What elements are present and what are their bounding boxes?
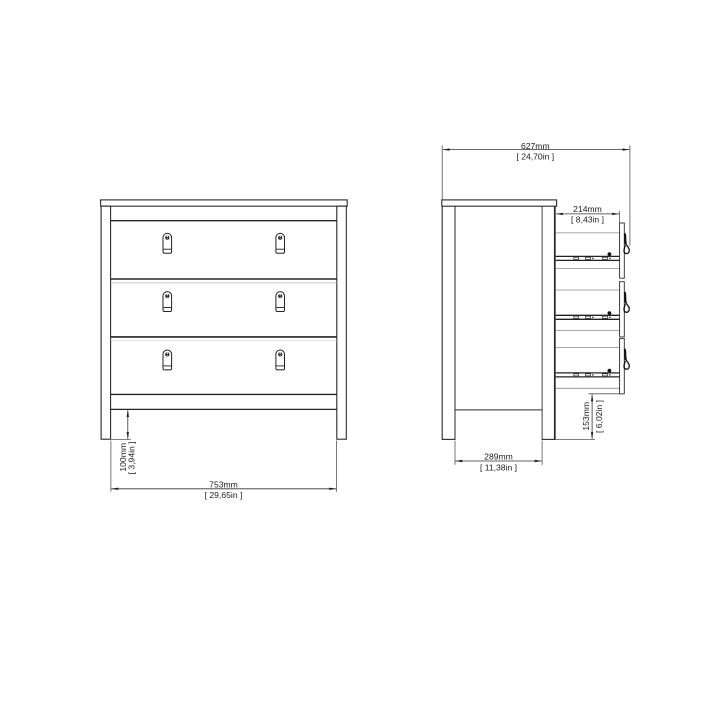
svg-text:289mm: 289mm — [484, 452, 513, 462]
svg-text:[ 8,43in ]: [ 8,43in ] — [571, 215, 604, 225]
svg-text:[ 3,94in ]: [ 3,94in ] — [127, 441, 137, 474]
svg-text:214mm: 214mm — [573, 204, 602, 214]
svg-text:[ 11,38in ]: [ 11,38in ] — [480, 462, 517, 472]
svg-text:[ 29,65in ]: [ 29,65in ] — [205, 490, 243, 500]
svg-text:153mm: 153mm — [581, 402, 591, 431]
svg-text:753mm: 753mm — [209, 479, 238, 489]
svg-text:[ 24,70in ]: [ 24,70in ] — [516, 152, 554, 162]
svg-text:[ 6,02in ]: [ 6,02in ] — [594, 400, 604, 433]
svg-text:627mm: 627mm — [521, 141, 550, 151]
